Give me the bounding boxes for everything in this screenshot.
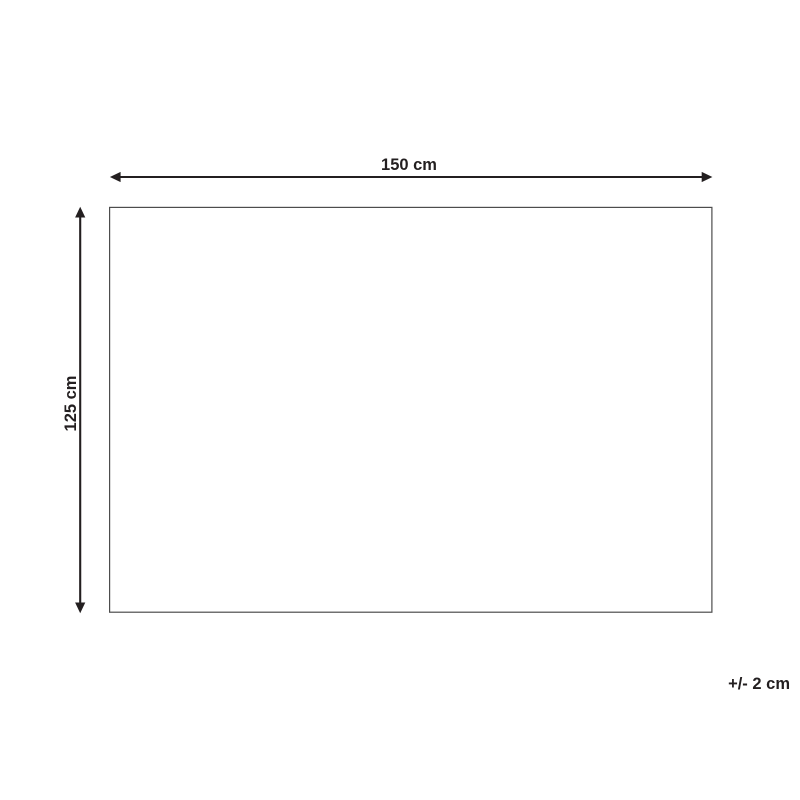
svg-text:150 cm: 150 cm [381, 156, 437, 174]
svg-text:125 cm: 125 cm [62, 376, 80, 432]
svg-text:+/- 2 cm: +/- 2 cm [728, 675, 790, 693]
